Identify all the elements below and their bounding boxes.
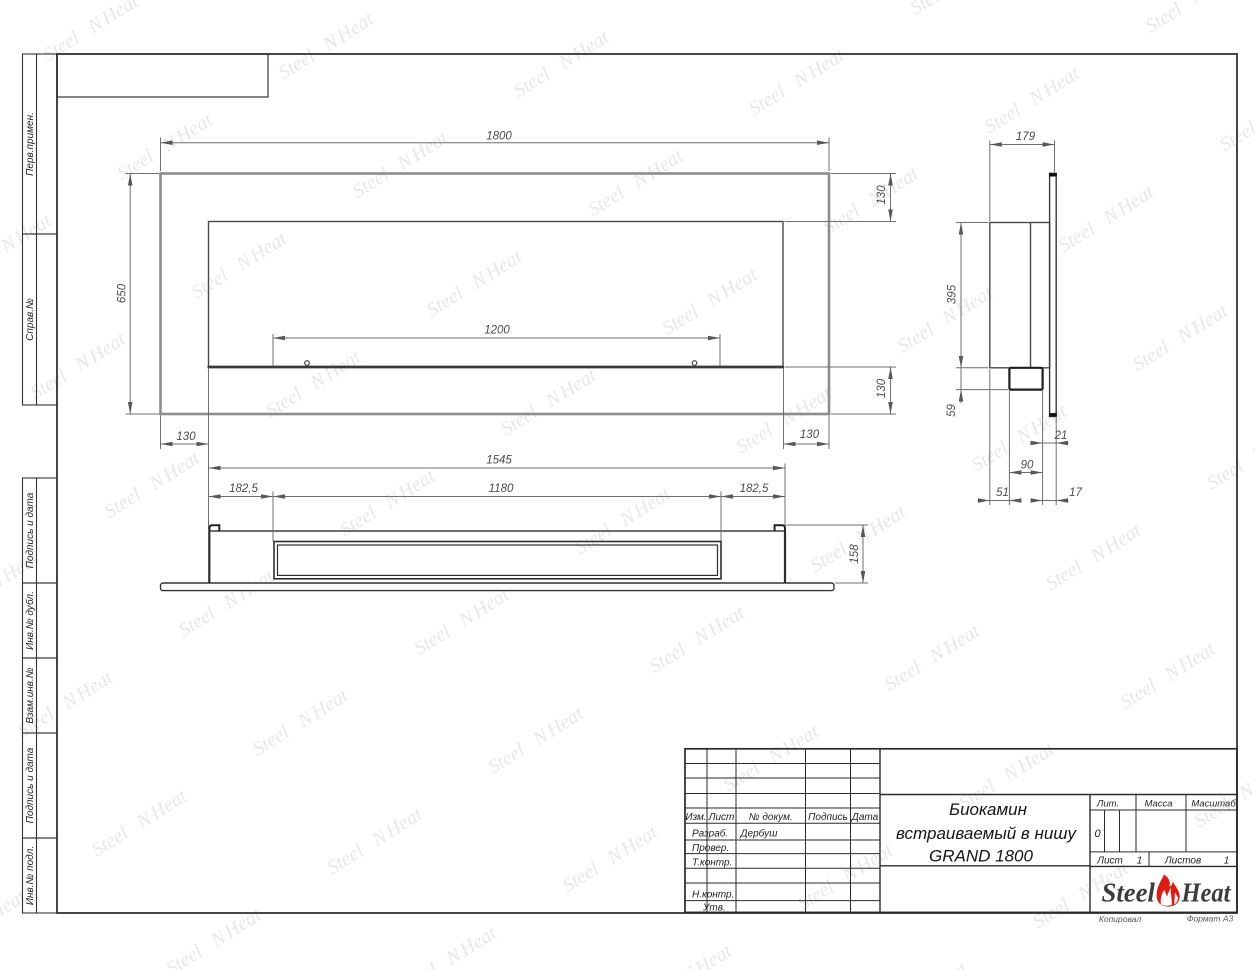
svg-text:650: 650 <box>117 283 129 303</box>
svg-text:Перв.примен.: Перв.примен. <box>25 112 36 176</box>
svg-text:1180: 1180 <box>489 483 514 495</box>
svg-text:182,5: 182,5 <box>229 483 258 495</box>
svg-text:Дата: Дата <box>851 812 879 823</box>
svg-text:Т.контр.: Т.контр. <box>692 858 732 869</box>
svg-text:Steel: Steel <box>1102 878 1156 908</box>
svg-text:130: 130 <box>876 185 888 205</box>
svg-text:Лист: Лист <box>708 812 735 823</box>
svg-text:Инв.№ подл.: Инв.№ подл. <box>25 846 36 905</box>
svg-text:Н.контр.: Н.контр. <box>692 890 734 901</box>
svg-text:Heat: Heat <box>1181 878 1232 908</box>
svg-text:GRAND 1800: GRAND 1800 <box>929 847 1033 866</box>
svg-text:395: 395 <box>947 284 959 304</box>
svg-text:Подпись и дата: Подпись и дата <box>25 492 36 568</box>
svg-text:90: 90 <box>1021 460 1034 472</box>
svg-text:Формат А3: Формат А3 <box>1187 914 1234 924</box>
svg-text:59: 59 <box>946 404 958 417</box>
svg-text:130: 130 <box>800 429 820 441</box>
svg-text:встраиваемый в нишу: встраиваемый в нишу <box>896 824 1077 843</box>
svg-text:Лит.: Лит. <box>1096 799 1119 810</box>
svg-text:Подпись и дата: Подпись и дата <box>25 747 36 823</box>
svg-text:0: 0 <box>1094 828 1101 840</box>
svg-text:Дербуш: Дербуш <box>740 828 779 840</box>
svg-text:Масштаб: Масштаб <box>1191 799 1236 810</box>
svg-text:130: 130 <box>176 431 196 443</box>
svg-text:Взам.инв.№: Взам.инв.№ <box>25 667 36 723</box>
svg-text:№ докум.: № докум. <box>749 812 793 823</box>
svg-text:1: 1 <box>1224 856 1230 867</box>
svg-text:Утв.: Утв. <box>702 903 726 914</box>
svg-text:1200: 1200 <box>484 325 510 337</box>
svg-text:51: 51 <box>996 487 1009 499</box>
svg-text:158: 158 <box>849 544 861 564</box>
svg-text:179: 179 <box>1016 131 1036 143</box>
svg-text:Разраб.: Разраб. <box>692 828 728 840</box>
svg-text:21: 21 <box>1054 430 1068 442</box>
svg-text:Листов: Листов <box>1164 856 1201 867</box>
svg-text:1545: 1545 <box>486 455 512 467</box>
svg-text:Справ.№: Справ.№ <box>25 298 36 341</box>
svg-text:130: 130 <box>876 378 888 398</box>
svg-text:Инв.№ дубл.: Инв.№ дубл. <box>24 591 36 650</box>
svg-text:Масса: Масса <box>1144 799 1172 810</box>
svg-text:Изм.: Изм. <box>685 812 706 823</box>
svg-text:1800: 1800 <box>486 131 512 143</box>
svg-text:Провер.: Провер. <box>692 843 729 854</box>
svg-text:1: 1 <box>1137 856 1143 867</box>
svg-text:Лист: Лист <box>1096 856 1123 867</box>
svg-text:17: 17 <box>1069 487 1082 499</box>
svg-text:Подпись: Подпись <box>808 812 848 823</box>
svg-text:182,5: 182,5 <box>740 483 769 495</box>
svg-text:Биокамин: Биокамин <box>949 800 1028 819</box>
svg-text:Копировал: Копировал <box>1099 914 1141 924</box>
